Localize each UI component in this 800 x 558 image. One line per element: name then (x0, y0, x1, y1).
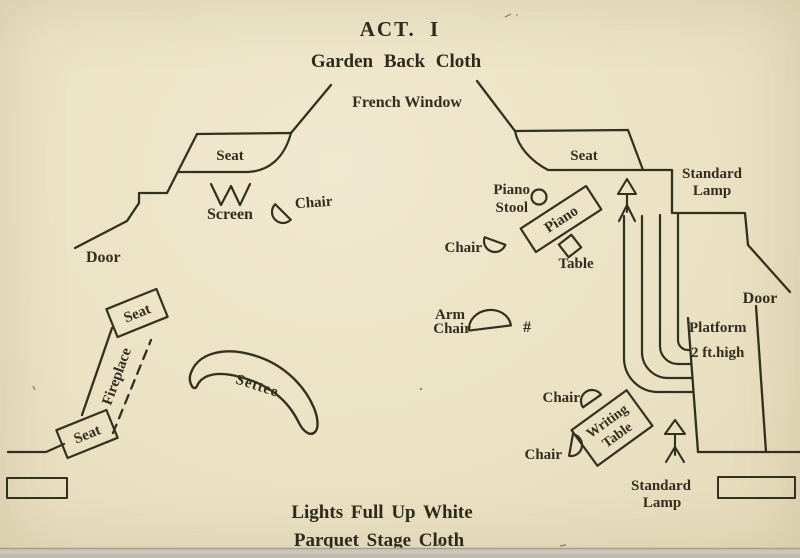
platform-label-2: 2 ft.high (691, 345, 745, 361)
writing-table-symbol: Writing Table (572, 390, 653, 466)
seat-left-label: Seat (216, 148, 244, 164)
standard-lamp-top-label-1: Standard (682, 166, 743, 182)
footlight-left (7, 478, 67, 498)
french-window-right-jamb (477, 81, 515, 131)
seat-right-label: Seat (570, 148, 598, 164)
scan-page-edge (0, 548, 800, 558)
arm-chair-mark: # (523, 319, 531, 336)
platform-label-1: Platform (689, 320, 747, 336)
standard-lamp-top-label-2: Lamp (693, 183, 731, 199)
door-left-label: Door (86, 249, 121, 266)
french-window-label: French Window (352, 94, 462, 111)
settee-label: Settee (234, 372, 281, 401)
act-title: ACT. I (360, 17, 440, 41)
screen-symbol (211, 184, 250, 205)
backcloth-label: Garden Back Cloth (311, 51, 482, 72)
arm-chair-symbol (467, 308, 511, 331)
chair-screen-label: Chair (294, 194, 333, 213)
chair-writing-top-label: Chair (543, 390, 581, 406)
standard-lamp-bottom-symbol (665, 420, 685, 462)
seat-fireplace-bottom-label: Seat (72, 422, 103, 447)
fireplace-seat-bottom: Seat (56, 410, 117, 458)
writing-table-group: Writing Table Chair Chair (525, 386, 653, 466)
standard-lamp-top-symbol (618, 179, 636, 221)
piano-stool-label-1: Piano (493, 182, 530, 198)
chair-writing-bottom-label: Chair (525, 447, 563, 463)
arm-chair-label-2: Chair (433, 321, 471, 337)
piano-label: Piano (542, 203, 581, 236)
small-table-label: Table (558, 256, 594, 272)
stage-plan-diagram: ACT. I Garden Back Cloth French Window D… (0, 0, 800, 558)
screen-label: Screen (207, 206, 253, 223)
stairs (624, 214, 693, 392)
standard-lamp-bottom-label-1: Standard (631, 478, 692, 494)
french-window-left-jamb (291, 85, 331, 133)
piano-stool-label-2: Stool (495, 200, 528, 216)
small-table-symbol (559, 235, 581, 257)
lights-note: Lights Full Up White (291, 502, 472, 523)
fireplace-group: Seat Seat Fireplace (56, 289, 167, 458)
piano-stool-symbol (532, 190, 547, 205)
fireplace-label: Fireplace (100, 346, 136, 408)
standard-lamp-bottom-label-2: Lamp (643, 495, 681, 511)
bottom-left-wall (8, 444, 64, 452)
chair-screen-symbol (267, 204, 290, 227)
door-right-label: Door (743, 290, 778, 307)
left-wall (75, 134, 197, 248)
chair-piano-label: Chair (445, 240, 483, 256)
stage-plan-scan: ACT. I Garden Back Cloth French Window D… (0, 0, 800, 558)
fireplace-seat-top: Seat (106, 289, 167, 337)
seat-fireplace-top-label: Seat (122, 301, 153, 326)
chair-piano-symbol (481, 237, 505, 255)
footlight-right (718, 477, 795, 498)
chair-writing-top-symbol (577, 386, 601, 408)
piano-group: Piano Stool Piano Table Chair (445, 182, 602, 272)
